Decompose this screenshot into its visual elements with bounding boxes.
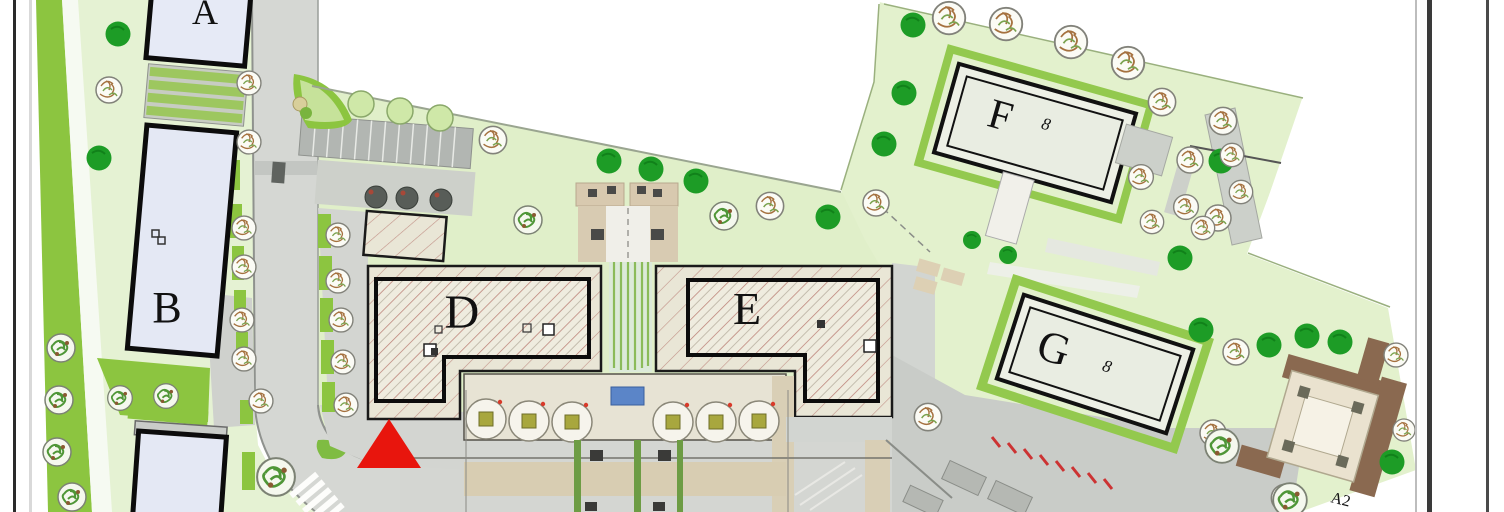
svg-text:B: B (152, 283, 181, 332)
svg-text:D: D (445, 286, 480, 339)
svg-text:E: E (733, 283, 761, 334)
svg-text:A: A (192, 0, 218, 32)
